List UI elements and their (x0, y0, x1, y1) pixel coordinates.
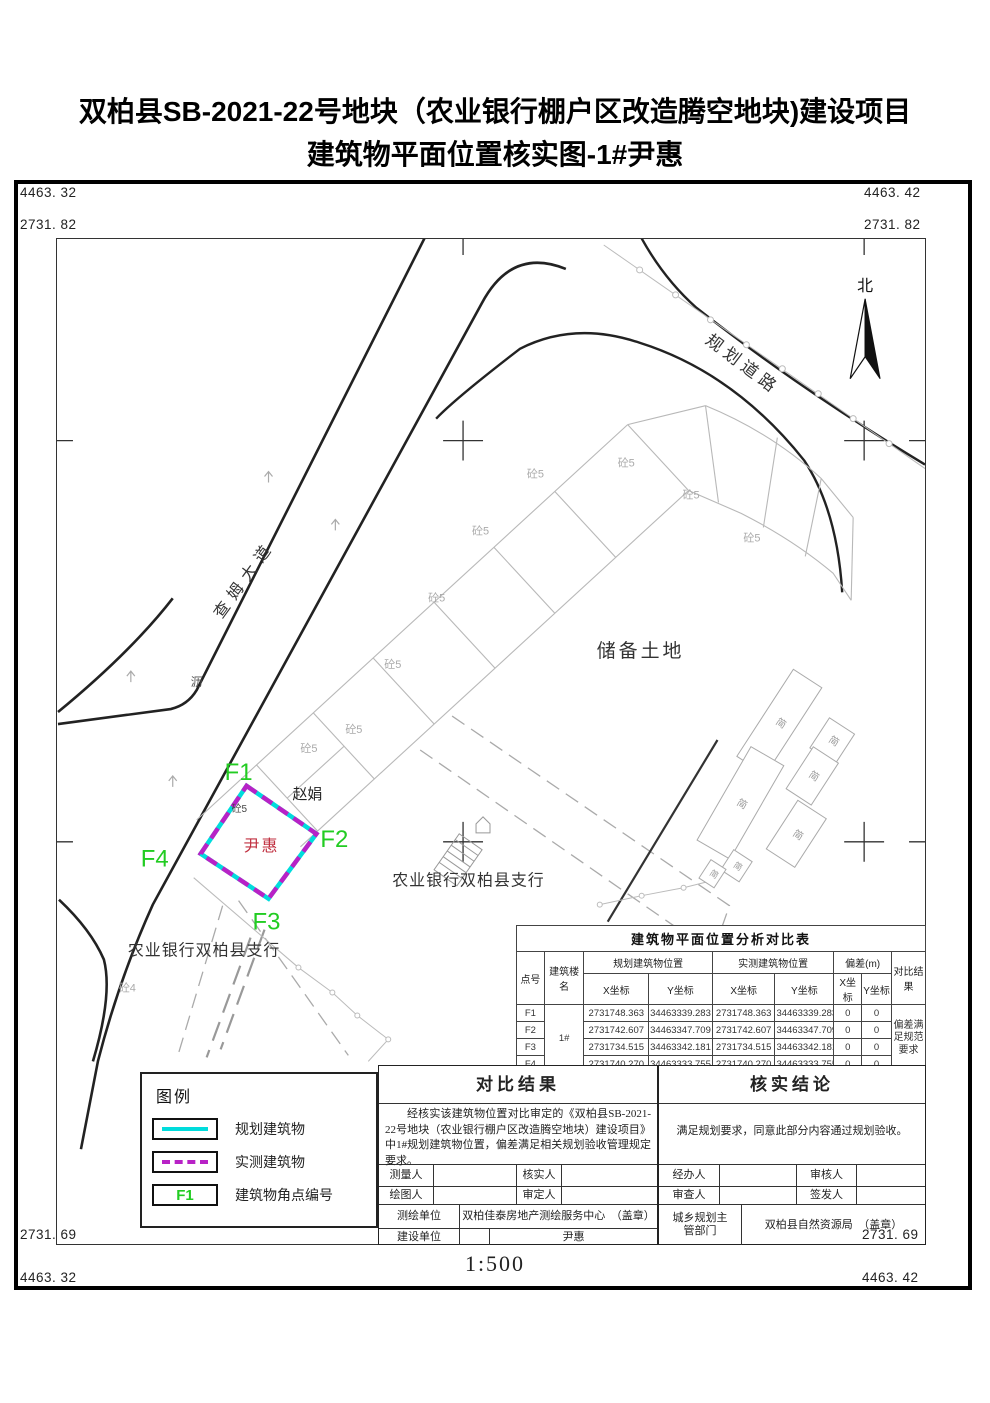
parcel-label: 砼5 (618, 457, 635, 470)
shed-buildings (697, 669, 854, 888)
bank-label-upper: 农业银行双柏县支行 (392, 872, 545, 890)
legend: 图例 规划建筑物 实测建筑物 F1 建筑物角点编号 (140, 1072, 378, 1228)
col-result: 对比结果 (891, 952, 925, 1005)
frame-coord-bl-e: 4463. 32 (20, 1270, 77, 1285)
col-x: X坐标 (712, 974, 775, 1005)
label-verifier: 核实人 (516, 1165, 561, 1186)
field-examiner (719, 1187, 796, 1204)
label-examiner: 审查人 (659, 1187, 719, 1204)
label-planning-dept: 城乡规划主管部门 (659, 1205, 741, 1245)
label-drafter: 绘图人 (379, 1187, 433, 1204)
field-surveyor (433, 1165, 516, 1186)
cell-point: F2 (517, 1022, 545, 1039)
legend-item-measured: 实测建筑物 (152, 1151, 376, 1173)
cell-my: 34463347.709 (775, 1022, 834, 1039)
title-line1: 双柏县SB-2021-22号地块（农业银行棚户区改造腾空地块)建设项目 (0, 90, 990, 133)
boundary-line (608, 740, 718, 922)
cell-dx: 0 (834, 1005, 862, 1022)
cell-result: 偏差满足规范要求 (891, 1005, 925, 1073)
label-survey-unit: 测绘单位 (379, 1205, 459, 1228)
measured-line-symbol (152, 1151, 218, 1173)
legend-item-planned: 规划建筑物 (152, 1118, 376, 1140)
parcel-label: 砼5 (472, 524, 489, 537)
north-label: 北 (857, 277, 873, 295)
frame-coord-tl-e: 4463. 32 (20, 185, 77, 200)
col-deviation: 偏差(m) (834, 952, 892, 974)
frame-coord-br-e: 4463. 42 (862, 1270, 919, 1285)
parcel-label: 砼5 (384, 658, 401, 671)
conclusion-paragraph: 满足规划要求，同意此部分内容通过规划验收。 (659, 1104, 925, 1139)
parcel-label-tong4: 砼4 (119, 982, 136, 995)
cell-mx: 2731748.363 (712, 1005, 775, 1022)
map-scale: 1:500 (375, 1251, 615, 1277)
tree-symbols (127, 472, 340, 787)
corner-point-f2: F2 (320, 826, 348, 853)
field-handler (719, 1165, 796, 1186)
cell-dy: 0 (862, 1022, 892, 1039)
label-surveyor: 测量人 (379, 1165, 433, 1186)
verification-conclusion-title: 核实结论 (659, 1066, 925, 1104)
verification-sheet: 双柏县SB-2021-22号地块（农业银行棚户区改造腾空地块)建设项目 建筑物平… (0, 0, 990, 1403)
cell-dx: 0 (834, 1039, 862, 1056)
cell-dx: 0 (834, 1022, 862, 1039)
col-y: Y坐标 (775, 974, 834, 1005)
page-title: 双柏县SB-2021-22号地块（农业银行棚户区改造腾空地块)建设项目 建筑物平… (0, 90, 990, 177)
cell-px: 2731734.515 (584, 1039, 649, 1056)
field-blank (459, 1229, 489, 1245)
cell-py: 34463347.709 (649, 1022, 713, 1039)
building-type-label: 砼5 (232, 802, 248, 815)
frame-coord-bl-n: 2731. 69 (20, 1227, 77, 1242)
corner-number-symbol: F1 (152, 1184, 218, 1206)
parcel-label: 砼5 (428, 591, 445, 604)
corner-point-f4: F4 (141, 846, 169, 873)
value-construction-unit: 尹惠 (489, 1229, 657, 1245)
label-handler: 经办人 (659, 1165, 719, 1186)
legend-item-corner: F1 建筑物角点编号 (152, 1184, 376, 1206)
legend-title: 图例 (156, 1083, 376, 1107)
parcel-label: 砼5 (527, 468, 544, 481)
label-issuer: 签发人 (796, 1187, 856, 1204)
label-reviewer: 审核人 (796, 1165, 856, 1186)
cell-py: 34463342.181 (649, 1039, 713, 1056)
value-survey-unit: 双柏佳泰房地产测绘服务中心 （盖章） (459, 1205, 657, 1228)
parcel-cluster-lines (628, 406, 853, 601)
cell-building-name: 1# (544, 1005, 584, 1073)
field-reviewer (856, 1165, 925, 1186)
owner-yinhui-label: 尹惠 (244, 837, 280, 855)
col-planned: 规划建筑物位置 (584, 952, 712, 974)
comparison-result-title: 对比结果 (379, 1066, 657, 1104)
cell-px: 2731742.607 (584, 1022, 649, 1039)
cell-point: F3 (517, 1039, 545, 1056)
frame-coord-br-n: 2731. 69 (862, 1227, 919, 1242)
north-arrow-icon (850, 299, 880, 379)
col-y: Y坐标 (649, 974, 713, 1005)
col-x: X坐标 (834, 974, 862, 1005)
asphalt-label: 沥 (191, 675, 203, 689)
cell-py: 34463339.283 (649, 1005, 713, 1022)
cell-point: F1 (517, 1005, 545, 1022)
col-point: 点号 (517, 952, 545, 1005)
table-row: F1 1# 2731748.363 34463339.283 2731748.3… (517, 1005, 926, 1022)
cell-my: 34463339.283 (775, 1005, 834, 1022)
cell-my: 34463342.181 (775, 1039, 834, 1056)
field-approver (561, 1187, 657, 1204)
field-drafter (433, 1187, 516, 1204)
label-approver: 审定人 (516, 1187, 561, 1204)
parcel-label: 砼5 (300, 742, 317, 755)
parcel-label: 砼5 (345, 723, 362, 736)
owner-zhaojuan-label: 赵娟 (292, 786, 322, 803)
verification-conclusion-text: 满足规划要求，同意此部分内容通过规划验收。 (659, 1104, 925, 1164)
parcel-strip-lines (197, 425, 689, 847)
legend-label: 建筑物角点编号 (235, 1185, 333, 1205)
analysis-table: 建筑物平面位置分析对比表 点号 建筑楼名 规划建筑物位置 实测建筑物位置 偏差(… (516, 925, 926, 1065)
parcel-label: 砼5 (743, 531, 760, 544)
bank-label-lower: 农业银行双柏县支行 (128, 942, 281, 960)
reserved-land-label: 储备土地 (597, 640, 685, 662)
frame-coord-tl-n: 2731. 82 (20, 217, 77, 232)
field-verifier (561, 1165, 657, 1186)
cell-px: 2731748.363 (584, 1005, 649, 1022)
chamu-road-label: 查姆大道 (210, 537, 278, 622)
cell-mx: 2731734.515 (712, 1039, 775, 1056)
house-icon (476, 817, 490, 833)
col-measured: 实测建筑物位置 (712, 952, 833, 974)
col-x: X坐标 (584, 974, 649, 1005)
legend-label: 实测建筑物 (235, 1152, 305, 1172)
frame-coord-tr-e: 4463. 42 (864, 185, 921, 200)
col-y: Y坐标 (862, 974, 892, 1005)
result-paragraph: 经核实该建筑物位置对比审定的《双柏县SB-2021-22号地块（农业银行棚户区改… (379, 1104, 657, 1169)
comparison-result-text: 经核实该建筑物位置对比审定的《双柏县SB-2021-22号地块（农业银行棚户区改… (379, 1104, 657, 1164)
corner-point-f1: F1 (225, 759, 253, 786)
planned-line-symbol (152, 1118, 218, 1140)
frame-coord-tr-n: 2731. 82 (864, 217, 921, 232)
parcel-label: 砼5 (683, 488, 700, 501)
cell-dy: 0 (862, 1039, 892, 1056)
comparison-result-block: 对比结果 经核实该建筑物位置对比审定的《双柏县SB-2021-22号地块（农业银… (378, 1065, 658, 1245)
analysis-table-title: 建筑物平面位置分析对比表 (517, 926, 926, 952)
legend-label: 规划建筑物 (235, 1119, 305, 1139)
cell-mx: 2731742.607 (712, 1022, 775, 1039)
verification-conclusion-block: 核实结论 满足规划要求，同意此部分内容通过规划验收。 经办人 审核人 审查人 签… (658, 1065, 926, 1245)
boundary-fence-bank (296, 965, 391, 1061)
col-building: 建筑楼名 (544, 952, 584, 1005)
chamu-road-lines (58, 239, 566, 1149)
cell-dy: 0 (862, 1005, 892, 1022)
label-construction-unit: 建设单位 (379, 1229, 459, 1245)
title-line2: 建筑物平面位置核实图-1#尹惠 (0, 133, 990, 176)
corner-point-f3: F3 (253, 909, 281, 936)
field-issuer (856, 1187, 925, 1204)
